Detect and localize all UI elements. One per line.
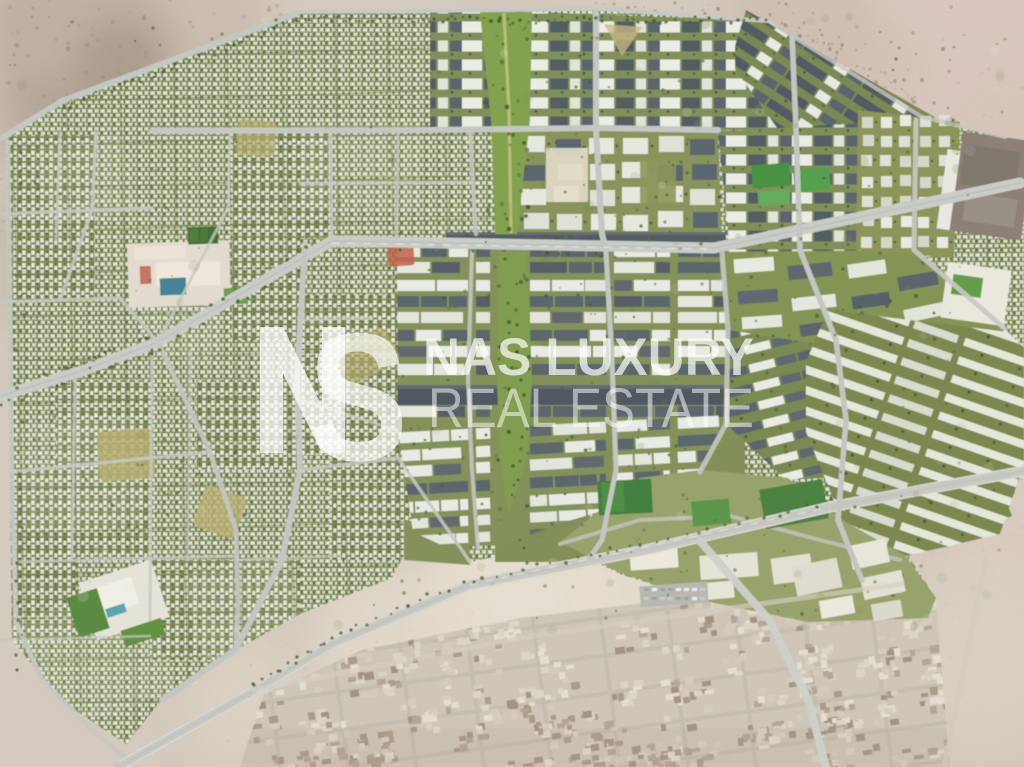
svg-text:S: S xyxy=(308,295,408,499)
svg-text:REAL ESTATE: REAL ESTATE xyxy=(428,376,754,439)
